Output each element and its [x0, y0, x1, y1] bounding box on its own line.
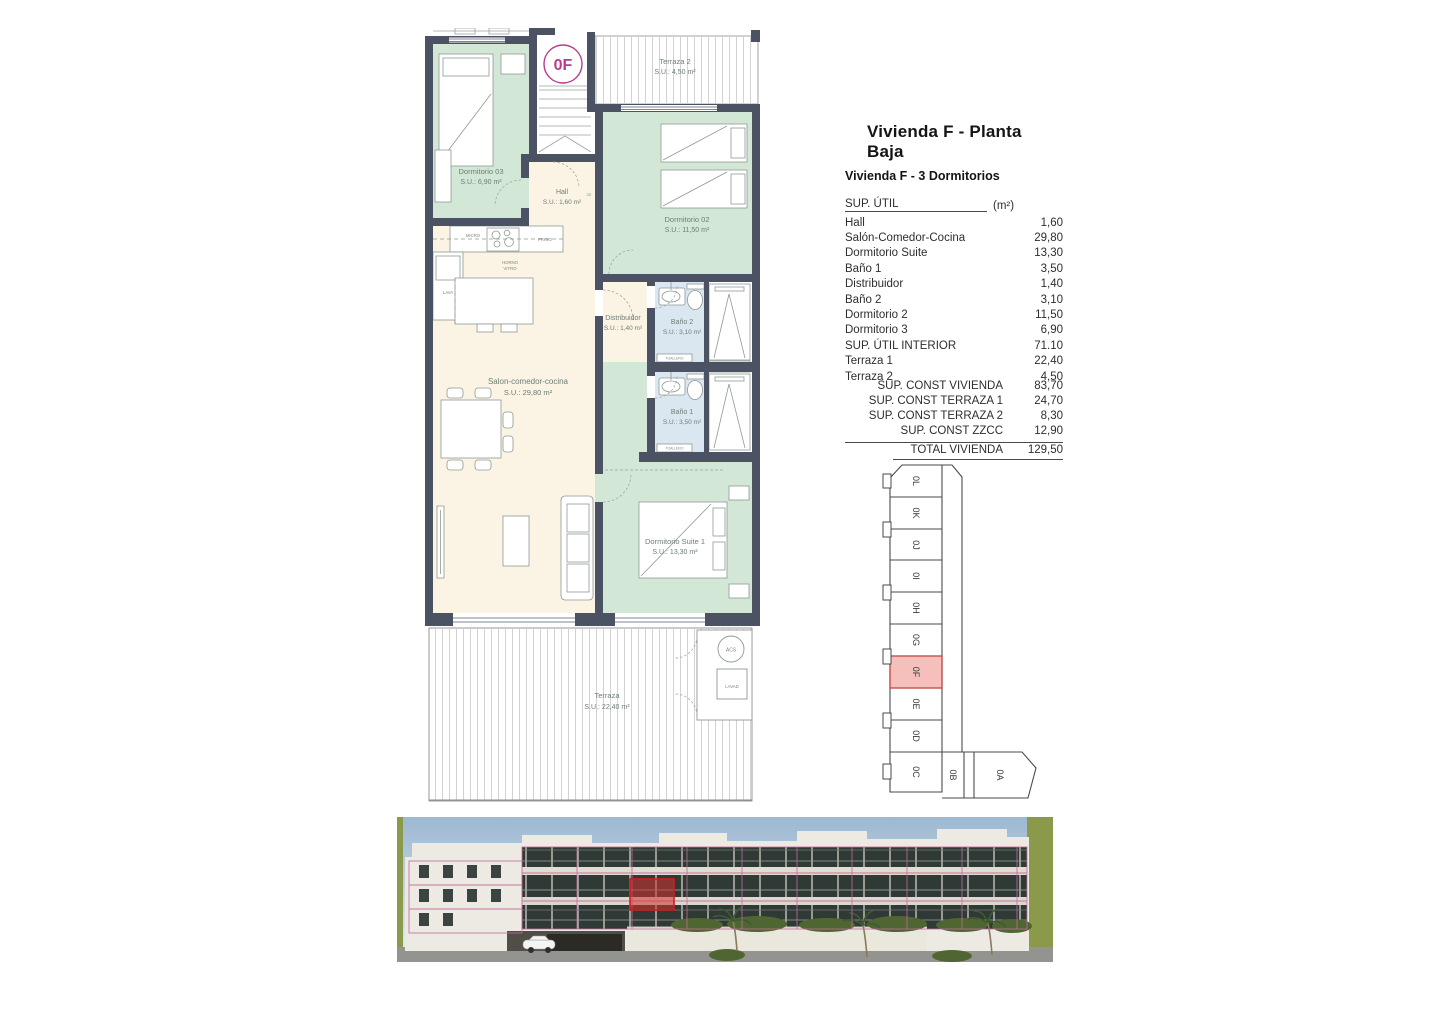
table-row: Dormitorio 211,50	[845, 307, 1063, 322]
coffee-table	[503, 516, 529, 566]
label-distribuidor-name: Distribuidor	[605, 315, 641, 322]
label-terraza2-name: Terraza 2	[659, 57, 690, 66]
shower1	[709, 374, 750, 450]
label-hall-area: S.U.: 1,60 m²	[543, 199, 582, 206]
row-value: 11,50	[1035, 309, 1063, 321]
sofa	[561, 496, 593, 600]
label-acs: ACS	[726, 648, 737, 654]
label-suite-area: S.U.: 13,30 m²	[652, 549, 698, 556]
highlighted-unit-0f	[630, 879, 674, 910]
row-value: 71.10	[1034, 340, 1063, 352]
label-lava: LAVA	[443, 290, 453, 295]
label-micro: MICRO	[466, 233, 481, 238]
key-plan-unit: 0I	[911, 572, 921, 580]
row-value: 22,40	[1034, 355, 1063, 367]
row-label: Baño 1	[845, 263, 881, 275]
key-plan-unit: 0E	[911, 698, 921, 709]
label-salon-name: Salon-comedor-cocina	[488, 377, 569, 386]
row-label: Dormitorio 2	[845, 309, 908, 321]
label-bano1-area: S.U.: 3,50 m²	[663, 419, 702, 426]
acs-closet	[697, 630, 752, 720]
table-row: SUP. CONST ZZCC12,90	[845, 424, 1063, 439]
row-label: SUP. ÚTIL INTERIOR	[845, 340, 956, 352]
label-terraza1-name: Terraza	[594, 691, 620, 700]
kitchen-island	[455, 278, 533, 332]
key-plan-unit: 0G	[911, 634, 921, 646]
row-label: Terraza 1	[845, 355, 893, 367]
table-row: SUP. CONST TERRAZA 124,70	[845, 393, 1063, 408]
row-label: SUP. CONST TERRAZA 1	[845, 395, 1017, 407]
unit-badge-label: 0F	[554, 57, 573, 74]
key-plan-unit: 0A	[995, 769, 1005, 780]
room-hall	[529, 162, 595, 234]
key-plan-unit: 0J	[911, 540, 921, 550]
table-row: Distribuidor1,40	[845, 277, 1063, 292]
page-subtitle: Vivienda F - 3 Dormitorios	[845, 169, 1063, 183]
info-panel: Vivienda F - Planta Baja Vivienda F - 3 …	[845, 122, 1063, 384]
label-ce: CE	[587, 193, 593, 197]
key-plan-unit: 0F	[911, 667, 921, 678]
top-balcony	[433, 28, 529, 34]
label-toallero-1: TOALLERO	[665, 447, 683, 451]
table-row: SUP. CONST VIVIENDA83,70	[845, 378, 1063, 393]
hillside-right	[1027, 817, 1053, 962]
page-title: Vivienda F - Planta Baja	[845, 122, 1063, 162]
row-label: Baño 2	[845, 294, 881, 306]
label-bano1-name: Baño 1	[671, 409, 693, 416]
row-label: Salón-Comedor-Cocina	[845, 232, 965, 244]
row-value: 3,50	[1041, 263, 1063, 275]
label-bano2-name: Baño 2	[671, 319, 693, 326]
table-row: Hall1,60	[845, 215, 1063, 230]
summary-table: SUP. CONST VIVIENDA83,70 SUP. CONST TERR…	[845, 378, 1063, 460]
row-value: 13,30	[1034, 247, 1063, 259]
key-plan-unit: 0B	[948, 769, 958, 780]
row-label: SUP. CONST VIVIENDA	[845, 380, 1017, 392]
row-label: Distribuidor	[845, 278, 903, 290]
area-table: SUP. ÚTIL (m²) Hall1,60 Salón-Comedor-Co…	[845, 198, 1063, 384]
row-label: Hall	[845, 217, 865, 229]
table-row: Terraza 122,40	[845, 354, 1063, 369]
table-row: Baño 13,50	[845, 261, 1063, 276]
hillside-left	[397, 817, 403, 962]
floor-plan-drawing: 0F Dormitorio 03 S.U.: 6,90 m² Hall S.U.…	[425, 28, 760, 803]
label-terraza2-area: S.U.: 4,50 m²	[654, 69, 696, 76]
label-hall-name: Hall	[556, 189, 569, 196]
row-label: Dormitorio 3	[845, 324, 908, 336]
row-label: SUP. CONST TERRAZA 2	[845, 410, 1017, 422]
label-horno-2: VITRO	[503, 266, 517, 271]
building-render	[397, 817, 1053, 962]
label-terraza1-area: S.U.: 22,40 m²	[584, 704, 630, 711]
row-value: 6,90	[1041, 324, 1063, 336]
table-row: SUP. CONST TERRAZA 28,30	[845, 408, 1063, 423]
key-plan-unit: 0D	[911, 730, 921, 742]
label-lavad: LAVAD	[725, 684, 738, 689]
row-value: 24,70	[1017, 395, 1063, 407]
table-row: Salón-Comedor-Cocina29,80	[845, 230, 1063, 245]
tv-unit	[437, 506, 444, 578]
row-value: 83,70	[1017, 380, 1063, 392]
label-dorm03-area: S.U.: 6,90 m²	[460, 179, 502, 186]
area-table-header: SUP. ÚTIL (m²)	[845, 198, 1063, 212]
label-salon-area: S.U.: 29,80 m²	[504, 388, 553, 397]
row-value: 12,90	[1017, 425, 1063, 437]
room-passage	[603, 362, 647, 462]
row-value: 3,10	[1041, 294, 1063, 306]
room-distribuidor	[603, 282, 647, 362]
row-label: Dormitorio Suite	[845, 247, 927, 259]
label-suite-name: Dormitorio Suite 1	[645, 537, 705, 546]
area-table-header-label: SUP. ÚTIL	[845, 198, 987, 212]
label-horno-1: HORNO	[502, 260, 519, 265]
row-value: 1,40	[1041, 278, 1063, 290]
shower2	[709, 284, 750, 360]
key-plan: 0L 0K 0J 0I 0H 0G 0F 0E 0D 0C 0B 0A	[876, 452, 1051, 812]
label-frigo: FRIGO	[538, 237, 552, 242]
row-value: 1,60	[1041, 217, 1063, 229]
area-table-header-unit: (m²)	[993, 200, 1014, 212]
unit-badge: 0F	[544, 45, 582, 83]
table-row: SUP. ÚTIL INTERIOR71.10	[845, 338, 1063, 353]
key-plan-unit: 0K	[911, 507, 921, 518]
row-label: SUP. CONST ZZCC	[845, 425, 1017, 437]
key-plan-unit: 0H	[911, 602, 921, 614]
table-row: Dormitorio 36,90	[845, 323, 1063, 338]
row-value: 8,30	[1017, 410, 1063, 422]
table-row: Dormitorio Suite13,30	[845, 246, 1063, 261]
label-dorm03-name: Dormitorio 03	[458, 167, 503, 176]
label-dorm02-name: Dormitorio 02	[664, 215, 709, 224]
label-toallero-2: TOALLERO	[665, 357, 683, 361]
key-plan-unit: 0C	[911, 766, 921, 778]
plan-sheet: 0F Dormitorio 03 S.U.: 6,90 m² Hall S.U.…	[0, 0, 1440, 1024]
stairs	[539, 86, 591, 152]
label-dorm02-area: S.U.: 11,50 m²	[665, 227, 710, 234]
table-row: Baño 23,10	[845, 292, 1063, 307]
row-value: 29,80	[1034, 232, 1063, 244]
label-bano2-area: S.U.: 3,10 m²	[663, 329, 702, 336]
label-distribuidor-area: S.U.: 1,40 m²	[604, 325, 643, 332]
key-plan-unit: 0L	[911, 476, 921, 486]
